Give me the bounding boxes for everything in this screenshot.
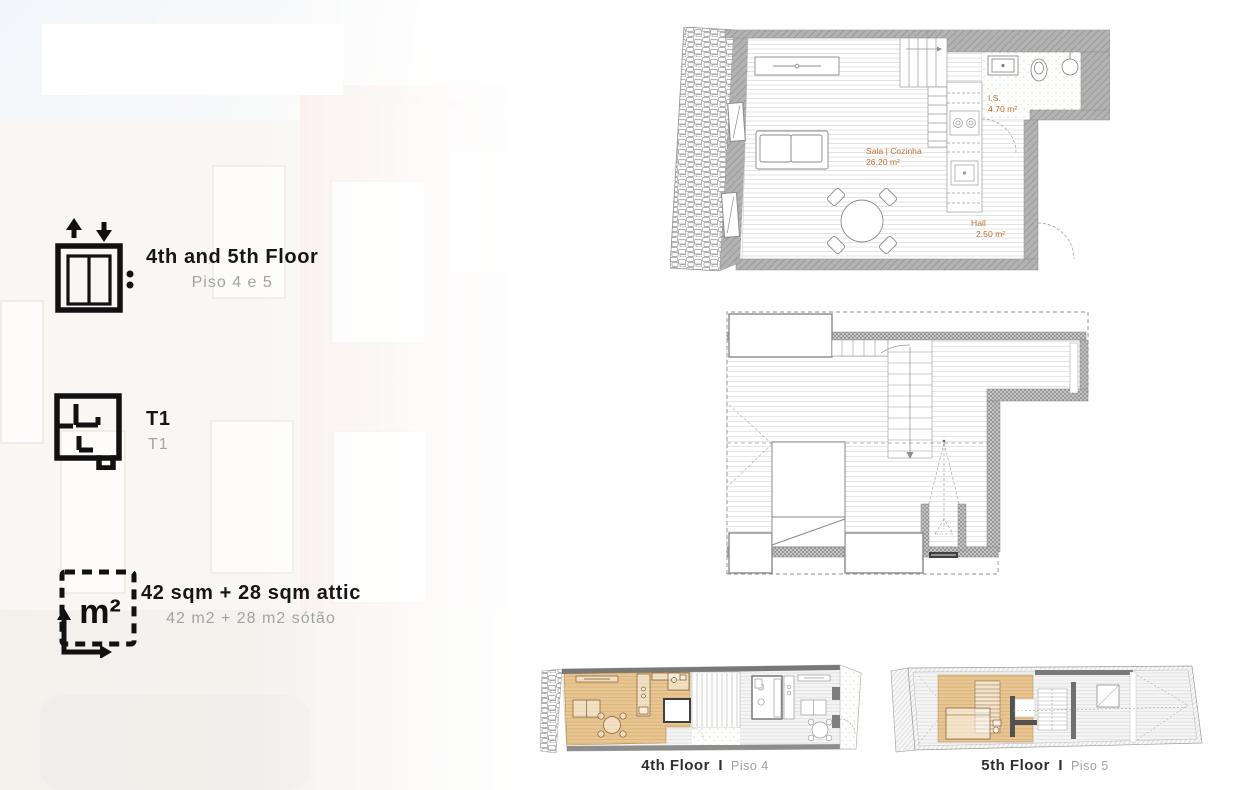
- mid-stairs: [1038, 689, 1067, 730]
- room-label-hall: Hall: [971, 218, 986, 228]
- feature-typology: T1 T1: [146, 408, 171, 454]
- caption-title: 4th Floor: [641, 757, 710, 774]
- feature-typology-title: T1: [146, 408, 171, 431]
- elevator-icon: [52, 218, 136, 314]
- feature-area: 42 sqm + 28 sqm attic 42 m2 + 28 m2 sótã…: [141, 582, 361, 628]
- caption-separator: I: [1058, 757, 1062, 774]
- caption-separator: I: [718, 757, 722, 774]
- feature-floor-title: 4th and 5th Floor: [146, 246, 318, 269]
- attic-floor-plan: [718, 307, 1090, 577]
- bed: [772, 442, 845, 547]
- area-icon: m²: [46, 566, 148, 658]
- gap-slot: [1130, 672, 1136, 742]
- logo-placeholder: [42, 24, 343, 95]
- window: [832, 715, 840, 728]
- core-wall: [1015, 720, 1037, 725]
- area-icon-label: m²: [79, 593, 121, 631]
- feature-floor: 4th and 5th Floor Piso 4 e 5: [146, 246, 318, 292]
- kitchen-counter: [947, 82, 982, 212]
- dormer-right: [845, 533, 923, 573]
- dormer-left: [729, 533, 772, 573]
- floor-caption-5th: 5th Floor I Piso 5: [885, 757, 1205, 775]
- window: [832, 687, 840, 700]
- main-floor-plan: Sala | Cozinha 26.20 m² I.S. 4.70 m² Hal…: [670, 27, 1110, 271]
- mini-plan-5th-floor: [885, 663, 1205, 755]
- mid-stairs: [692, 672, 740, 728]
- landing: [1015, 699, 1035, 717]
- core-wall: [1010, 696, 1015, 737]
- divider-wall: [1071, 682, 1076, 739]
- feature-area-title: 42 sqm + 28 sqm attic: [141, 582, 361, 605]
- chimney-slot: [1070, 343, 1078, 393]
- feature-typology-subtitle: T1: [148, 436, 169, 454]
- floor-caption-4th: 4th Floor I Piso 4: [540, 757, 870, 775]
- caption-subtitle: Piso 4: [731, 759, 769, 773]
- terrace: [840, 665, 861, 749]
- feature-area-subtitle: 42 m2 + 28 m2 sótão: [166, 610, 336, 628]
- floorplan-icon: [53, 392, 123, 470]
- closet: [729, 314, 832, 357]
- caption-subtitle: Piso 5: [1071, 759, 1109, 773]
- stone-wall: [540, 669, 562, 753]
- room-area-is: 4.70 m²: [988, 104, 1017, 114]
- room-area-hall: 2.50 m²: [976, 229, 1005, 239]
- room-label-is: I.S.: [988, 93, 1001, 103]
- caption-title: 5th Floor: [981, 757, 1050, 774]
- top-wall: [1035, 670, 1133, 675]
- stair-core: [664, 699, 690, 722]
- room-label-sala: Sala | Cozinha: [866, 146, 922, 156]
- brochure-page: 4th and 5th Floor Piso 4 e 5 T1 T1 m² 42…: [0, 0, 1243, 790]
- room-area-sala: 26.20 m²: [866, 157, 900, 167]
- feature-floor-subtitle: Piso 4 e 5: [192, 274, 273, 292]
- mini-plan-4th-floor: [540, 663, 870, 755]
